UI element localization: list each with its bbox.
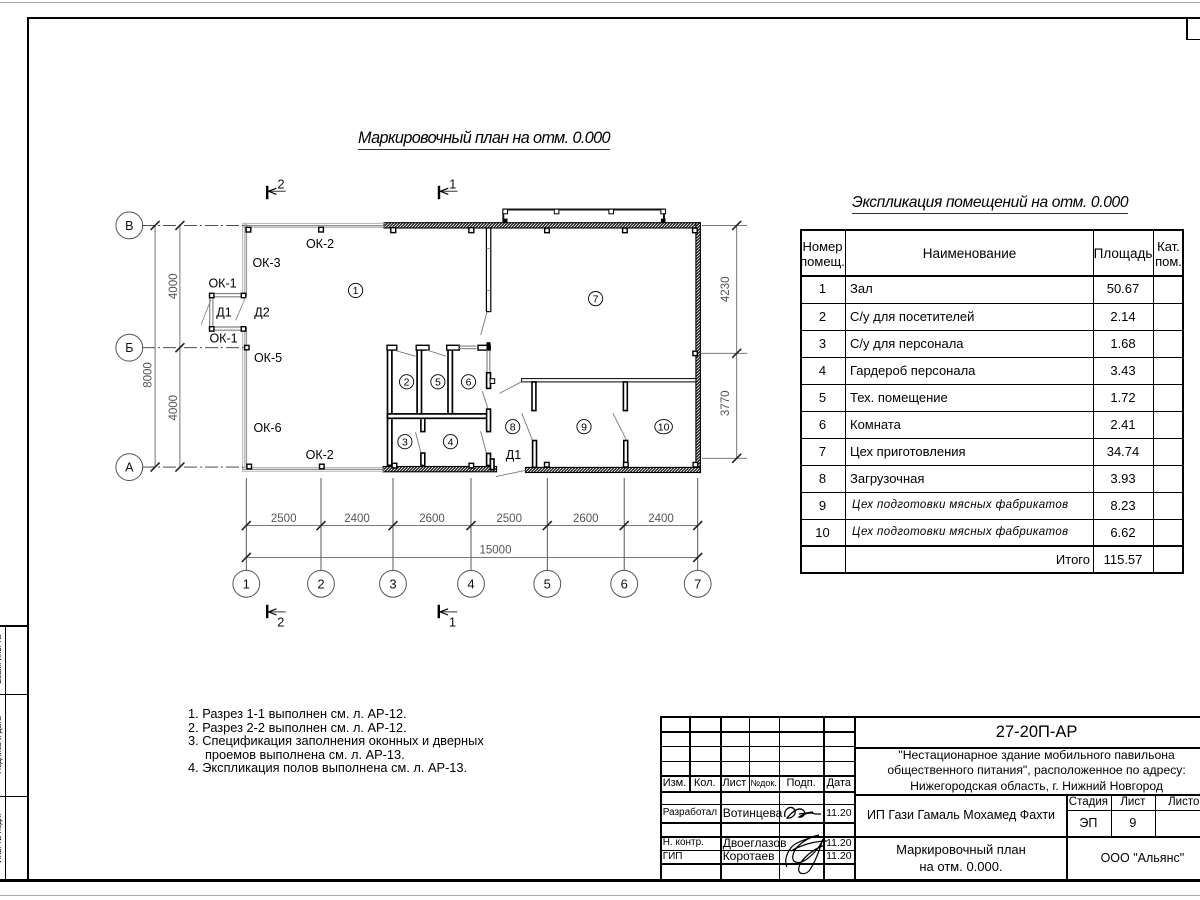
svg-text:1: 1 (353, 285, 359, 297)
svg-text:2400: 2400 (648, 513, 674, 525)
svg-text:ОК-6: ОК-6 (253, 421, 281, 435)
svg-text:4000: 4000 (168, 395, 180, 421)
svg-text:3770: 3770 (720, 391, 732, 417)
svg-text:2400: 2400 (344, 513, 370, 525)
svg-text:2: 2 (317, 576, 324, 591)
svg-text:ОК-2: ОК-2 (306, 237, 334, 251)
svg-text:2: 2 (404, 377, 410, 389)
svg-text:1: 1 (243, 576, 250, 591)
svg-text:ОК-2: ОК-2 (306, 448, 334, 462)
svg-text:8000: 8000 (143, 362, 155, 388)
svg-text:4230: 4230 (720, 277, 732, 303)
svg-text:5: 5 (435, 377, 441, 389)
svg-text:6: 6 (466, 377, 472, 389)
svg-text:3: 3 (402, 436, 408, 448)
svg-text:4: 4 (448, 436, 454, 448)
svg-text:7: 7 (593, 293, 599, 305)
svg-text:2600: 2600 (419, 513, 445, 525)
svg-text:ОК-1: ОК-1 (208, 277, 236, 291)
svg-text:7: 7 (694, 576, 701, 591)
svg-text:9: 9 (581, 421, 587, 433)
svg-text:5: 5 (544, 576, 551, 591)
svg-text:А: А (125, 461, 134, 475)
svg-text:2: 2 (277, 177, 284, 192)
svg-text:3: 3 (389, 576, 396, 591)
svg-text:ОК-3: ОК-3 (252, 256, 280, 270)
svg-text:В: В (125, 219, 133, 233)
svg-text:4000: 4000 (168, 274, 180, 300)
svg-text:4: 4 (467, 576, 474, 591)
svg-text:1: 1 (449, 615, 456, 630)
svg-text:2: 2 (277, 615, 284, 630)
svg-text:15000: 15000 (480, 545, 512, 557)
svg-text:8: 8 (510, 421, 516, 433)
svg-text:6: 6 (621, 576, 628, 591)
svg-text:1: 1 (449, 177, 456, 192)
svg-text:ОК-5: ОК-5 (254, 351, 282, 365)
svg-text:Д1: Д1 (506, 448, 521, 462)
svg-text:ОК-1: ОК-1 (209, 332, 237, 346)
svg-text:2600: 2600 (573, 513, 599, 525)
svg-text:Б: Б (125, 341, 133, 355)
svg-text:Д1: Д1 (216, 306, 231, 320)
svg-text:2500: 2500 (496, 513, 522, 525)
svg-text:10: 10 (658, 421, 670, 433)
svg-text:Д2: Д2 (254, 306, 269, 320)
svg-text:2500: 2500 (271, 513, 297, 525)
